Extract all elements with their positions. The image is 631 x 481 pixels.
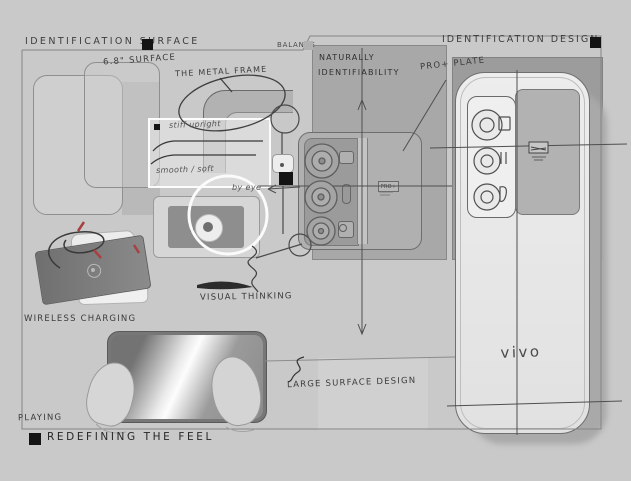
feel-box-marker-square (154, 124, 160, 130)
camera-plate-sketch: PRO+ (298, 132, 422, 250)
naturally-label-line1: NATURALLY (319, 53, 375, 62)
right-phone-body: vivo (455, 72, 590, 434)
right-phone-camera-plate (515, 89, 580, 215)
wireless-charging-label: WIRELESS CHARGING (24, 314, 136, 324)
right-phone-camera-column (467, 96, 516, 218)
vivo-logo: vivo (476, 341, 567, 362)
large-surface-curve (288, 357, 304, 382)
plate-edge-strip (357, 138, 368, 244)
footer-tagline: REDEFINING THE FEEL (47, 431, 214, 443)
left-header-marker-square (142, 39, 153, 50)
camera-card-dot (190, 228, 194, 232)
plate-small-square-bottom (338, 221, 354, 238)
bottom-light-sheet (318, 358, 428, 430)
marker-square-center (279, 172, 293, 185)
surface-feel-box (148, 118, 271, 188)
plate-pro-badge: PRO+ (378, 181, 399, 192)
design-sketch-board: stiff upright smooth / soft by eye WIREL… (0, 0, 631, 481)
right-header-marker-square (590, 37, 601, 48)
balance-marker-square (304, 41, 313, 50)
by-eye-label: by eye (232, 183, 261, 192)
plate-small-square-top (339, 151, 354, 164)
footer-marker-square (29, 433, 41, 445)
visual-thinking-label: VISUAL THINKING (200, 291, 293, 303)
playing-label: PLAYING (18, 413, 62, 424)
edge-detail-knob-dot (280, 163, 284, 167)
camera-card-lens-core (203, 222, 213, 232)
visual-thinking-swoosh (197, 281, 253, 289)
stiff-upright-label: stiff upright (169, 119, 221, 130)
plate-flash-pill (342, 184, 351, 204)
left-header-title: IDENTIFICATION SURFACE (25, 36, 200, 47)
naturally-label-line2: IDENTIFIABILITY (318, 68, 400, 77)
camera-card-sketch (153, 196, 260, 258)
metal-frame-label: THE METAL FRAME (175, 65, 268, 79)
right-header-title: IDENTIFICATION DESIGN (442, 34, 599, 45)
